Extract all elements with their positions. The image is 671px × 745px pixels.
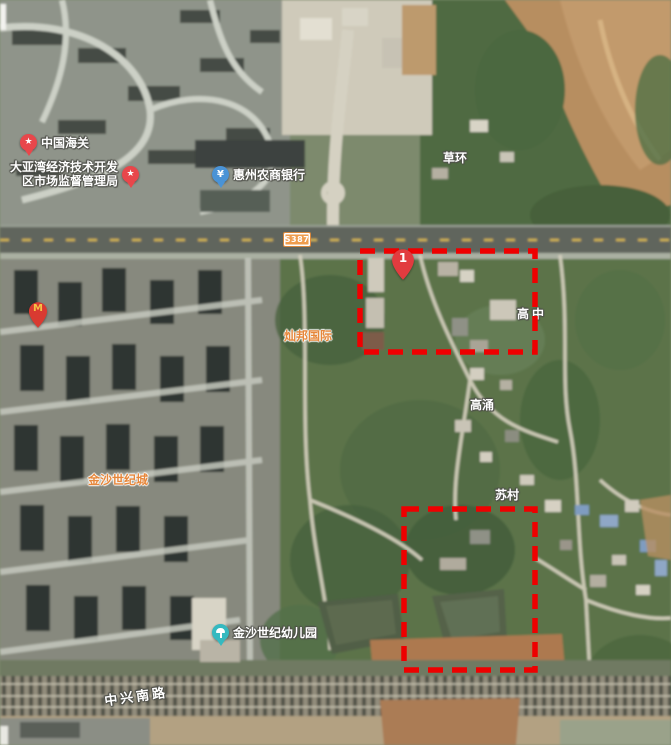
poi-kindergarten[interactable]: 金沙世纪幼儿园 (212, 624, 317, 641)
star-glyph: ★ (24, 138, 32, 147)
kindergarten-pin-icon (212, 624, 229, 641)
map-canvas[interactable]: 草环 高中 高涌 苏村 灿邦国际 金沙世纪城 中兴南路 S387 ★ 中国海关 … (0, 0, 671, 745)
poi-label-bureau-line2: 区市场监督管理局 (10, 174, 118, 188)
poi-bank[interactable]: ¥ 惠州农商银行 (212, 166, 305, 183)
poi-label-bank: 惠州农商银行 (233, 166, 305, 183)
road-badge-text: S387 (285, 235, 309, 244)
place-label-sucun: 苏村 (495, 486, 519, 503)
star-glyph: ★ (126, 170, 134, 179)
poi-label-bureau: 大亚湾经济技术开发 区市场监督管理局 (10, 160, 118, 188)
satellite-terrain (0, 0, 671, 745)
mcdonalds-m-glyph: M (28, 303, 48, 314)
place-label-gaoyong: 高涌 (470, 396, 494, 413)
place-label-gaozhong: 高中 (517, 305, 547, 322)
poi-market-bureau[interactable]: 大亚湾经济技术开发 区市场监督管理局 ★ (10, 160, 139, 188)
bank-pin-icon: ¥ (212, 166, 229, 183)
railway-corridor (0, 660, 671, 745)
poi-china-customs[interactable]: ★ 中国海关 (20, 134, 89, 151)
star-pin-icon: ★ (20, 134, 37, 151)
marker-1[interactable]: 1 (391, 248, 415, 281)
poi-label-customs: 中国海关 (41, 134, 89, 151)
star-pin-icon: ★ (122, 166, 139, 183)
yen-glyph: ¥ (217, 170, 224, 180)
mcdonalds-pin[interactable]: M (28, 301, 48, 329)
poi-label-kindergarten: 金沙世纪幼儿园 (233, 624, 317, 641)
complex-label-canbang[interactable]: 灿邦国际 (284, 327, 332, 344)
road-badge-s387: S387 (283, 232, 311, 247)
poi-label-bureau-line1: 大亚湾经济技术开发 (10, 160, 118, 174)
marker-1-number: 1 (391, 251, 415, 265)
complex-label-jinsha[interactable]: 金沙世纪城 (88, 471, 148, 488)
main-road (0, 225, 671, 259)
tree-glyph (216, 628, 225, 638)
place-label-caohuan: 草环 (443, 149, 467, 166)
